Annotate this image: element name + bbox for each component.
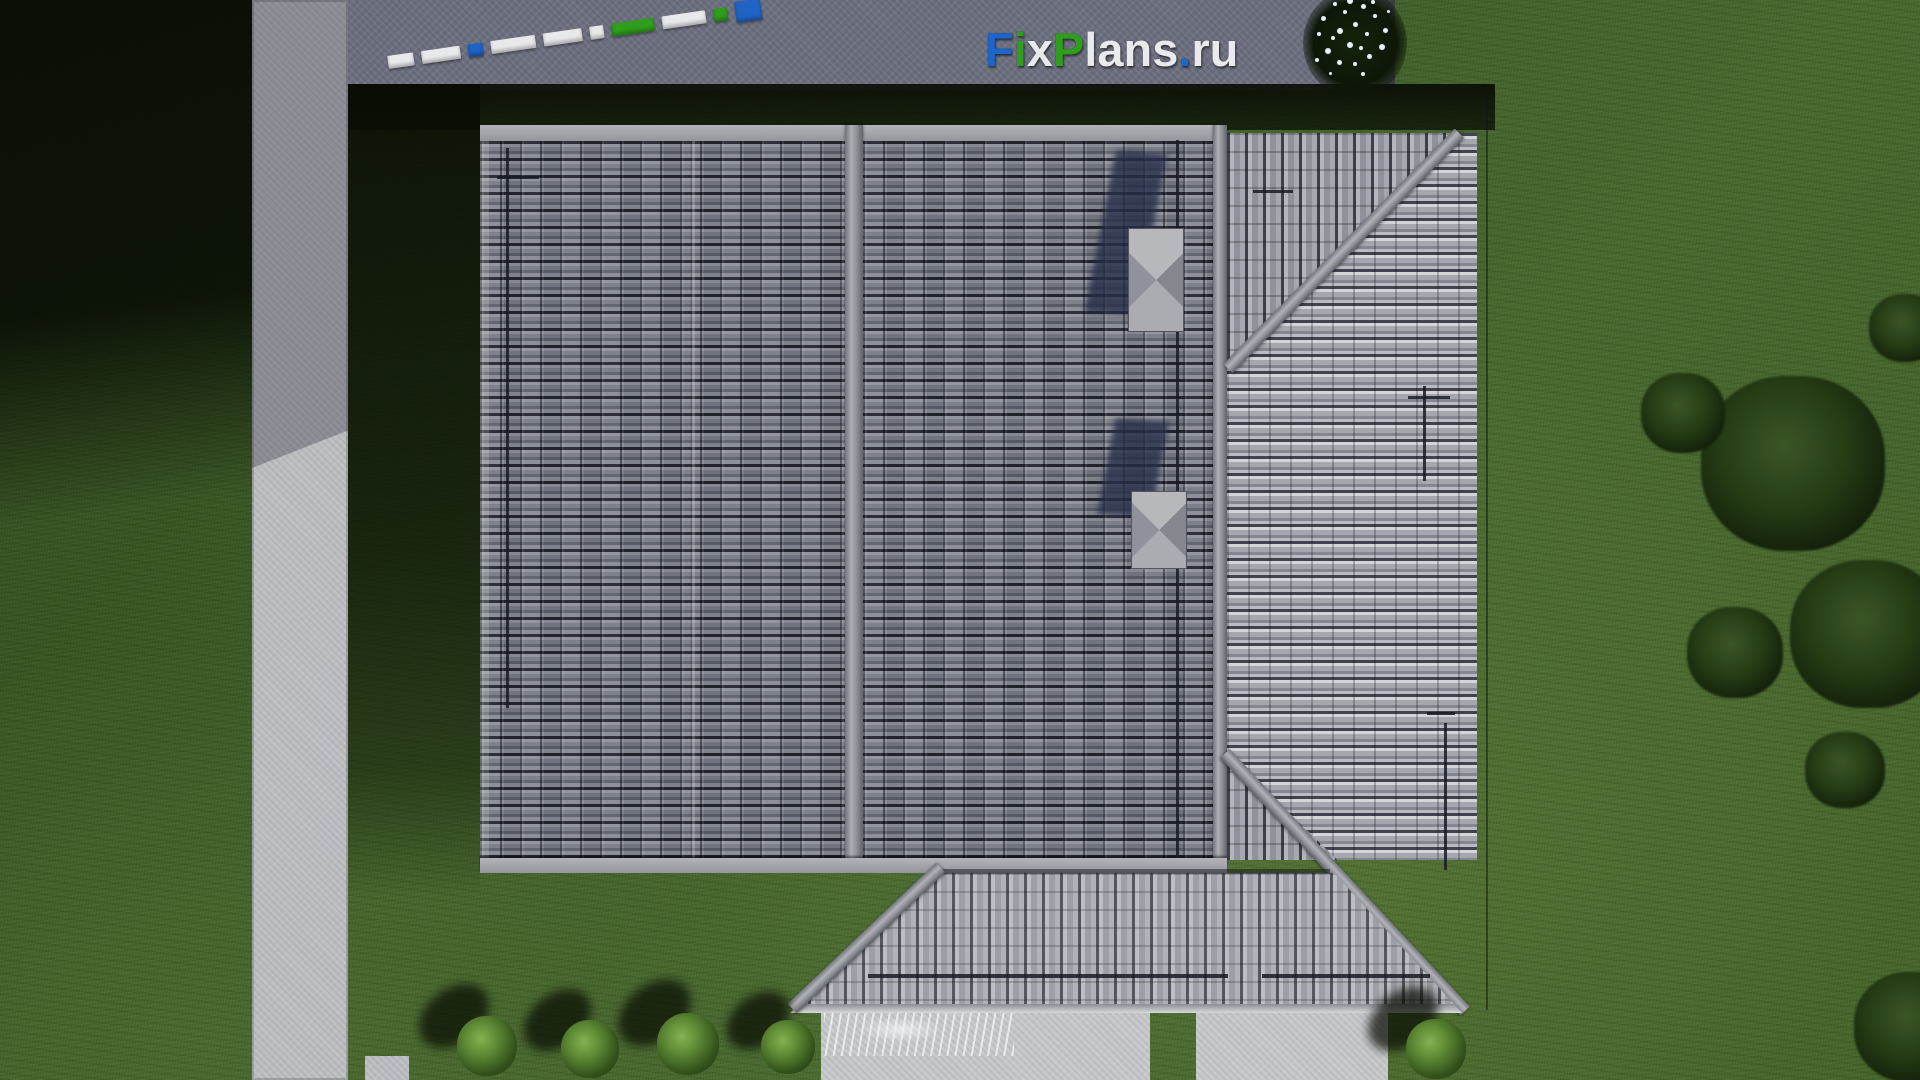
white-flower-dot — [1337, 28, 1343, 34]
snow-guard-tick-4 — [1427, 712, 1455, 715]
dark-tree — [1701, 376, 1885, 551]
white-flower-dot — [1361, 72, 1365, 76]
fence-segment-white — [589, 24, 604, 39]
fence-segment-white — [490, 34, 537, 53]
lightning-wire-east-lower — [1444, 723, 1447, 870]
chimney-2 — [1131, 491, 1187, 569]
stone-texture-streaks — [824, 1012, 1014, 1056]
logo-text-part: F — [985, 22, 1014, 77]
fence-segment-blue — [734, 0, 762, 22]
white-flower-dot — [1343, 10, 1347, 14]
shadow-top-left-lawn — [0, 0, 256, 520]
white-flower-dot — [1361, 4, 1366, 9]
fence-segment-white — [662, 10, 707, 29]
aerial-render-scene: FixPlans.ru — [0, 0, 1920, 1080]
logo-text-part: x — [1027, 22, 1053, 77]
white-flower-dot — [1371, 0, 1375, 4]
white-flower-dot — [1329, 72, 1332, 75]
white-flower-dot — [1373, 14, 1377, 18]
white-flower-dot — [1353, 22, 1358, 27]
walkway-shadow — [252, 0, 348, 468]
white-flower-dot — [1379, 44, 1385, 50]
white-flower-dot — [1315, 58, 1319, 62]
dark-tree — [1687, 607, 1783, 698]
fence-segment-green — [712, 7, 728, 22]
porch-snow-guard-1 — [868, 974, 1228, 978]
fence-segment-blue — [467, 42, 483, 57]
white-flower-dot — [1359, 46, 1363, 50]
building-shadow-west — [348, 84, 480, 896]
white-flower-dot — [1353, 62, 1357, 66]
dark-tree — [1790, 560, 1920, 708]
lightning-wire-west — [506, 148, 509, 708]
white-flower-dot — [1331, 36, 1335, 40]
logo-text-part: i — [1014, 22, 1027, 77]
snow-guard-tick-2 — [1253, 190, 1293, 193]
white-flower-dot — [1333, 2, 1337, 6]
logo-text-part: ru — [1191, 22, 1238, 77]
fence-segment-white — [420, 45, 461, 63]
dark-tree — [1805, 732, 1885, 808]
garden-shrub — [761, 1020, 815, 1074]
white-flower-dot — [1383, 28, 1388, 33]
building-shadow-north — [345, 84, 1495, 130]
white-flower-dot — [1317, 32, 1321, 36]
porch-snow-guard-2 — [1262, 974, 1430, 978]
logo-text-part: . — [1178, 22, 1191, 77]
white-flower-dot — [1321, 16, 1326, 21]
garden-shrub — [457, 1016, 517, 1076]
white-flower-dot — [1325, 48, 1331, 54]
roof-ridge-main — [1213, 125, 1227, 860]
garden-shrub — [561, 1020, 619, 1078]
snow-guard-tick-3 — [1408, 396, 1450, 399]
paver-bottom-left — [365, 1056, 409, 1080]
white-flower-dot — [1387, 10, 1390, 13]
driveway-pad-right — [1196, 1012, 1388, 1080]
roof-edge-west — [480, 141, 489, 858]
plot-boundary-line — [1486, 95, 1488, 1010]
white-flower-dot — [1337, 60, 1342, 65]
dark-tree — [1641, 373, 1725, 453]
roof-plane-seam — [692, 141, 695, 858]
roof-slope-west — [480, 141, 845, 860]
fence-segment-white — [387, 52, 414, 69]
chimney-1 — [1128, 228, 1184, 332]
fence-segment-green — [611, 17, 656, 36]
logo-text-part: lans — [1084, 22, 1178, 77]
white-flower-dot — [1347, 0, 1353, 4]
roof-ridge-left — [845, 125, 863, 860]
white-flower-dot — [1367, 54, 1372, 59]
snow-guard-tick-1 — [497, 176, 539, 179]
porch-junction-shadow — [930, 869, 1330, 874]
fence-segment-white — [542, 28, 583, 46]
white-flower-dot — [1347, 42, 1353, 48]
fixplans-watermark-logo: FixPlans.ru — [985, 20, 1238, 78]
garden-shrub — [657, 1013, 719, 1075]
white-flower-dot — [1365, 32, 1369, 36]
logo-text-part: P — [1053, 22, 1084, 77]
garden-shrub — [1406, 1019, 1466, 1079]
lightning-wire-east-upper — [1423, 386, 1426, 481]
